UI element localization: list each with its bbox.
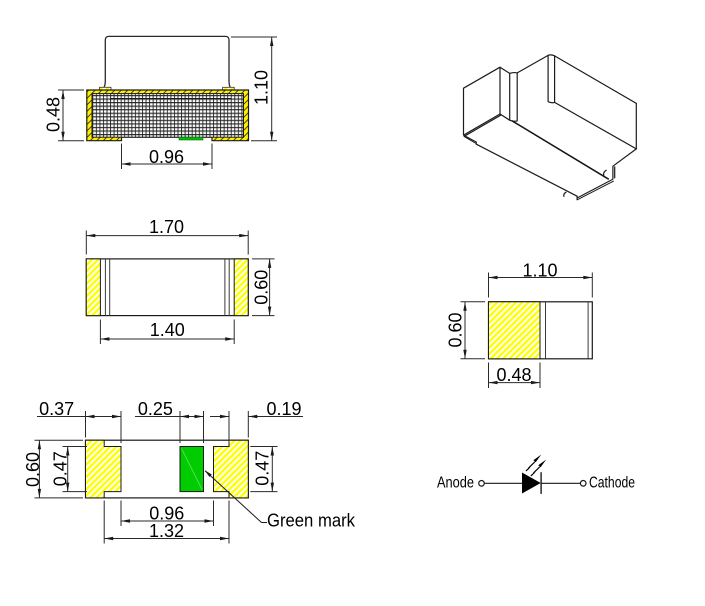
svg-text:1.10: 1.10 [522,260,557,280]
svg-text:1.40: 1.40 [150,320,185,340]
svg-text:0.19: 0.19 [266,399,301,419]
svg-text:0.47: 0.47 [50,451,70,486]
svg-text:Anode: Anode [437,475,474,492]
svg-text:0.37: 0.37 [39,399,74,419]
svg-text:0.96: 0.96 [149,147,184,167]
svg-text:0.60: 0.60 [252,270,272,305]
svg-text:0.48: 0.48 [43,97,63,132]
svg-text:1.32: 1.32 [149,521,184,541]
svg-text:Green mark: Green mark [267,511,356,531]
svg-text:0.47: 0.47 [252,451,272,486]
svg-text:1.70: 1.70 [149,217,184,237]
svg-text:Cathode: Cathode [589,475,635,492]
svg-text:1.10: 1.10 [251,70,271,105]
svg-text:0.60: 0.60 [23,452,43,487]
svg-text:0.48: 0.48 [496,365,531,385]
svg-text:0.60: 0.60 [445,312,465,347]
svg-text:0.25: 0.25 [138,399,173,419]
